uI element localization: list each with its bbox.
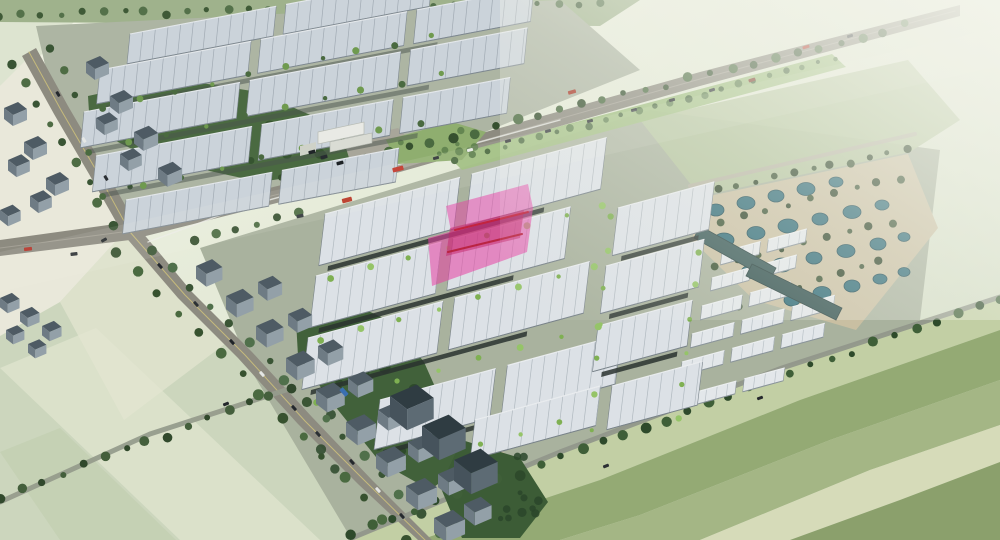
aerial-view-canvas [0,0,1000,540]
industrial-park-rendering [0,0,1000,540]
atmospheric-haze [500,0,1000,320]
